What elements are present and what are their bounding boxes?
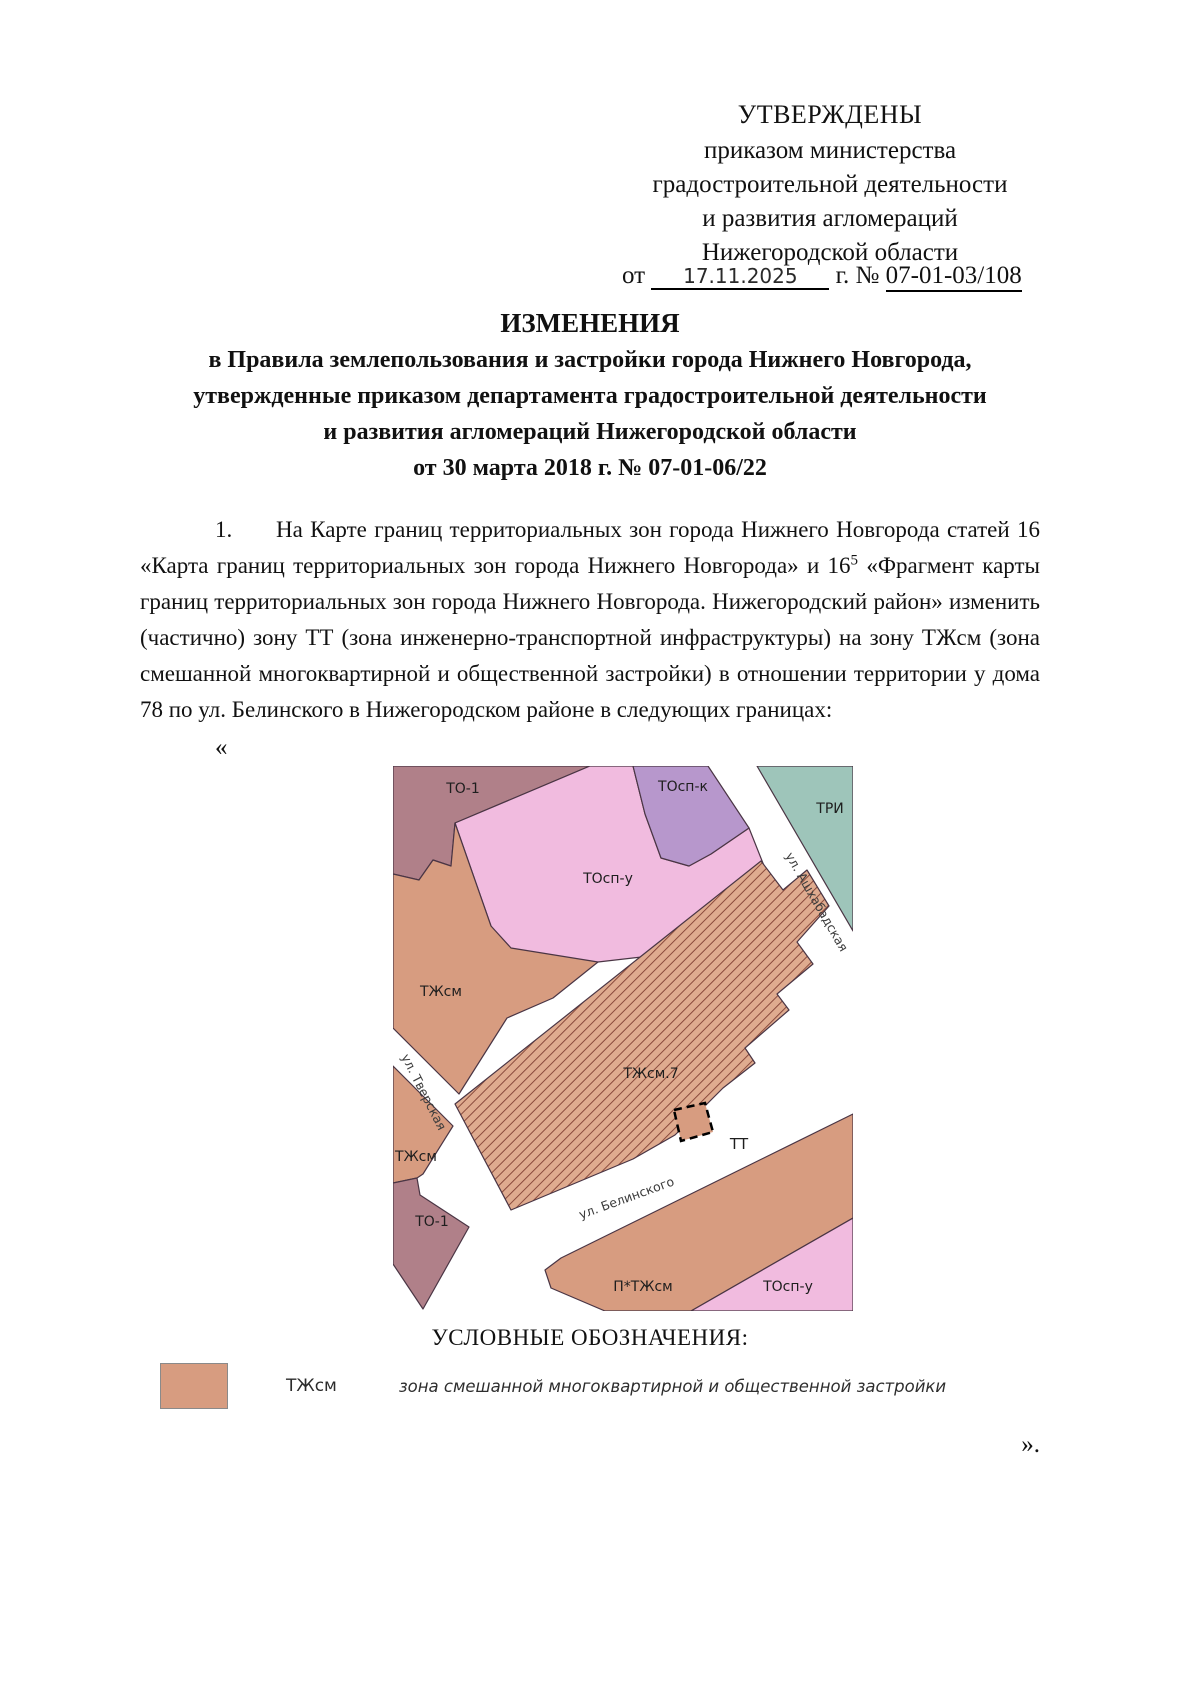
paragraph-1: 1. На Карте границ территориальных зон г… [140, 512, 1040, 728]
approval-line: градостроительной деятельности [615, 168, 1045, 202]
zone-label-tt: ТТ [729, 1135, 749, 1153]
date-suffix: г. № [836, 262, 880, 289]
order-number: 07-01-03/108 [886, 262, 1022, 292]
legend-zone-description: зона смешанной многоквартирной и обществ… [399, 1377, 946, 1396]
order-date-line: от 17.11.2025 г. № 07-01-03/108 [622, 262, 1042, 290]
zone-label-tosp-u-top: ТОсп-у [582, 871, 633, 887]
close-quote: ». [140, 1431, 1040, 1459]
legend-item-tzhsm: ТЖсм зона смешанной многоквартирной и об… [140, 1363, 1040, 1409]
open-quote: « [140, 734, 1040, 762]
zone-label-tosp-u-bottom: ТОсп-у [762, 1279, 813, 1295]
approval-line: приказом министерства [615, 134, 1045, 168]
date-prefix: от [622, 262, 645, 289]
title-line: утвержденные приказом департамента градо… [140, 378, 1040, 414]
approval-block: УТВЕРЖДЕНЫ приказом министерства градост… [615, 98, 1045, 270]
title-line: и развития агломераций Нижегородской обл… [140, 414, 1040, 450]
approval-heading: УТВЕРЖДЕНЫ [615, 98, 1045, 132]
title-heading: ИЗМЕНЕНИЯ [140, 305, 1040, 342]
document-body: ИЗМЕНЕНИЯ в Правила землепользования и з… [140, 305, 1040, 1459]
legend-swatch [160, 1363, 228, 1409]
zoning-map: ТО-1 ТОсп-к ТРИ ТОсп-у ТЖсм ТЖсм.7 ТЖсм … [393, 766, 853, 1311]
zone-label-tzhsm-lower: ТЖсм [394, 1149, 437, 1165]
document-title: ИЗМЕНЕНИЯ в Правила землепользования и з… [140, 305, 1040, 486]
legend-heading: УСЛОВНЫЕ ОБОЗНАЧЕНИЯ: [140, 1325, 1040, 1351]
zone-label-tzhsm-upper: ТЖсм [419, 984, 462, 1000]
zone-to1-bottom [393, 1178, 469, 1309]
zone-label-tzhsm7: ТЖсм.7 [622, 1066, 678, 1082]
superscript-5: 5 [851, 552, 859, 568]
changed-territory-dashed-outline [674, 1103, 713, 1141]
title-line: в Правила землепользования и застройки г… [140, 342, 1040, 378]
zone-label-to1-top: ТО-1 [445, 781, 480, 797]
title-line: от 30 марта 2018 г. № 07-01-06/22 [140, 450, 1040, 486]
zone-label-tosp-k: ТОсп-к [657, 779, 708, 795]
paragraph-1-text: «Фрагмент карты границ территориальных з… [140, 553, 1040, 722]
zone-label-tri: ТРИ [815, 801, 843, 817]
zone-label-to1-bottom: ТО-1 [414, 1214, 449, 1230]
legend-zone-code: ТЖсм [286, 1376, 337, 1396]
date-fill-in: 17.11.2025 [651, 264, 829, 290]
zone-label-p-tzhsm: П*ТЖсм [613, 1279, 672, 1295]
legend-swatch-rect [161, 1364, 228, 1409]
approval-line: и развития агломераций [615, 202, 1045, 236]
